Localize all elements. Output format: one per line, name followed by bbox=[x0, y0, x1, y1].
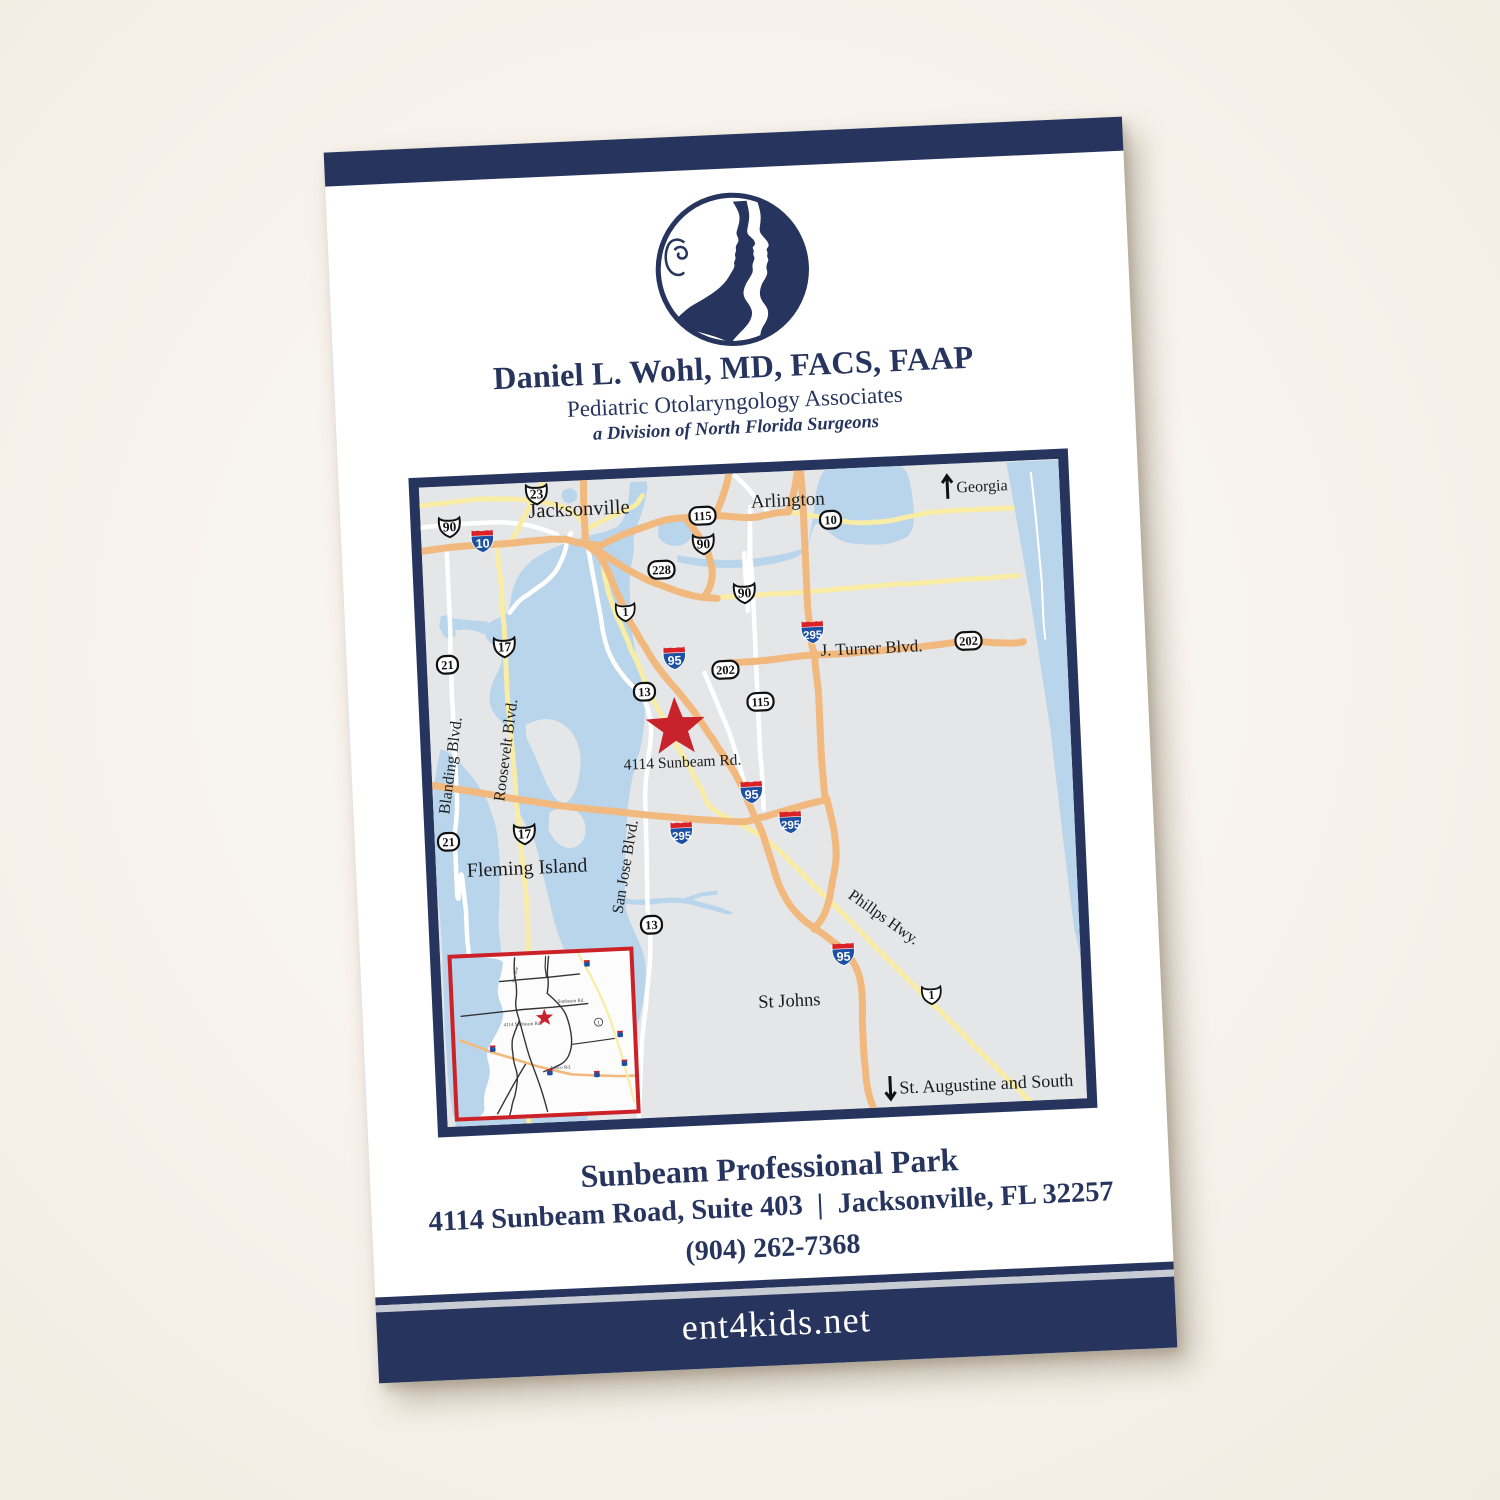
svg-text:90: 90 bbox=[737, 585, 751, 601]
svg-text:Georgia: Georgia bbox=[956, 477, 1008, 496]
svg-text:10: 10 bbox=[823, 513, 836, 528]
svg-text:St Johns: St Johns bbox=[757, 990, 820, 1013]
svg-text:1: 1 bbox=[928, 988, 935, 1002]
svg-text:1: 1 bbox=[597, 1021, 600, 1027]
svg-text:95: 95 bbox=[836, 949, 851, 964]
svg-text:13: 13 bbox=[637, 685, 650, 700]
svg-text:17: 17 bbox=[517, 826, 531, 842]
svg-text:115: 115 bbox=[751, 695, 770, 710]
svg-text:1: 1 bbox=[622, 605, 629, 619]
svg-text:90: 90 bbox=[442, 519, 456, 535]
svg-text:Losco Rd.: Losco Rd. bbox=[550, 1065, 571, 1071]
svg-text:21: 21 bbox=[441, 835, 454, 850]
svg-text:10: 10 bbox=[475, 536, 490, 551]
svg-text:295: 295 bbox=[780, 819, 800, 832]
svg-text:23: 23 bbox=[529, 486, 543, 502]
svg-text:295: 295 bbox=[671, 830, 691, 843]
svg-text:13: 13 bbox=[644, 918, 657, 933]
svg-text:295: 295 bbox=[802, 629, 822, 642]
svg-text:Arlington: Arlington bbox=[750, 488, 825, 512]
svg-text:95: 95 bbox=[667, 653, 682, 668]
svg-text:202: 202 bbox=[958, 634, 977, 649]
svg-text:21: 21 bbox=[440, 658, 453, 673]
svg-text:17: 17 bbox=[497, 639, 511, 655]
svg-text:228: 228 bbox=[651, 563, 670, 578]
svg-text:115: 115 bbox=[693, 509, 712, 524]
svg-text:90: 90 bbox=[696, 536, 710, 552]
svg-text:202: 202 bbox=[715, 663, 734, 678]
svg-text:95: 95 bbox=[744, 787, 759, 802]
